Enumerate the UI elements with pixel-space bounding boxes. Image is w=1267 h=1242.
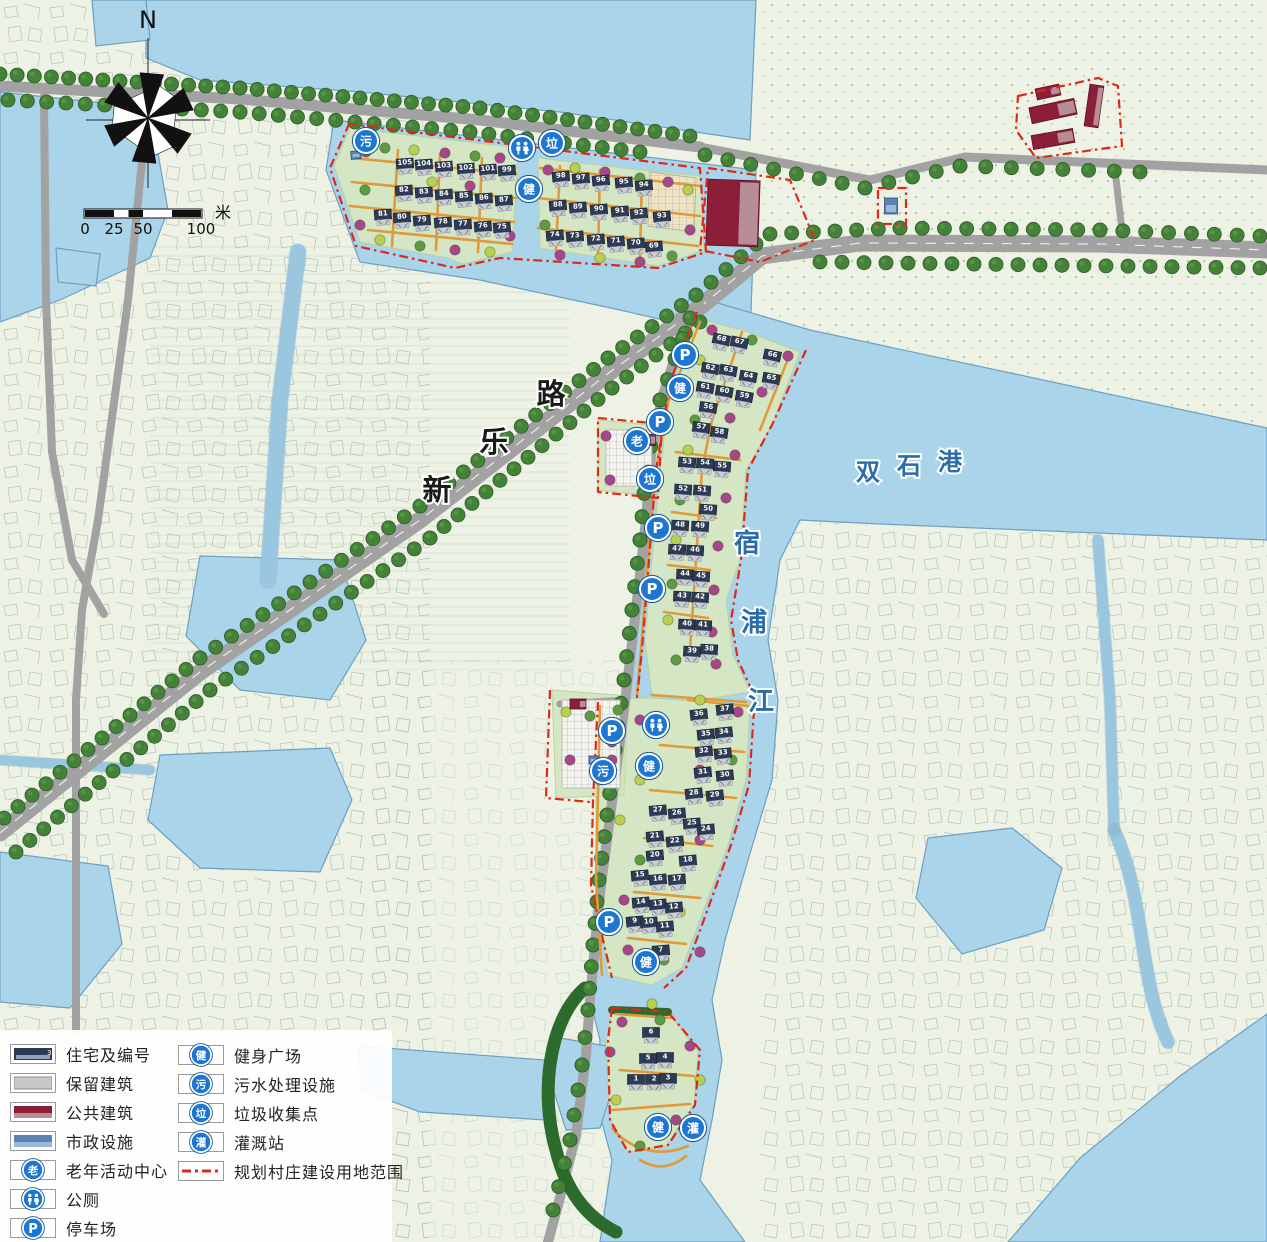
street-tree — [561, 113, 575, 127]
street-tree — [11, 800, 25, 814]
street-tree — [630, 556, 644, 570]
street-tree — [603, 786, 617, 800]
street-tree — [387, 94, 401, 108]
svg-text:P: P — [680, 346, 691, 364]
svg-text:灌: 灌 — [196, 1136, 207, 1149]
building-number: 98 — [556, 171, 567, 180]
street-tree — [233, 105, 247, 119]
garden-tree — [595, 253, 605, 263]
garden-tree — [619, 895, 629, 905]
street-tree — [1055, 258, 1069, 272]
street-tree — [310, 112, 324, 126]
street-tree — [1253, 261, 1267, 275]
garden-tree — [450, 245, 460, 255]
svg-text:双: 双 — [856, 458, 880, 486]
svg-text:港: 港 — [938, 448, 963, 476]
residential-building: 84 — [435, 189, 453, 206]
street-tree — [596, 117, 610, 131]
street-tree — [937, 221, 951, 235]
residential-building: 101 — [479, 164, 497, 181]
street-tree — [303, 575, 317, 589]
svg-text:P: P — [647, 580, 658, 598]
street-tree — [209, 640, 223, 654]
garden-tree — [565, 755, 575, 765]
street-tree — [234, 661, 248, 675]
street-tree — [1165, 260, 1179, 274]
street-tree — [625, 603, 639, 617]
legend-item-label: 污水处理设施 — [234, 1072, 336, 1096]
building-number: 97 — [576, 173, 587, 182]
residential-building: 53 — [678, 457, 696, 474]
building-number: 63 — [723, 365, 734, 375]
street-tree — [828, 224, 842, 238]
sewage-marker: 污 — [589, 757, 616, 784]
north-label: N — [139, 6, 157, 34]
street-tree — [616, 341, 630, 355]
street-tree — [151, 685, 165, 699]
building-number: 64 — [743, 371, 754, 381]
garden-tree — [555, 250, 565, 260]
street-tree — [1004, 161, 1018, 175]
street-tree — [719, 263, 733, 277]
street-tree — [929, 165, 943, 179]
building-number: 3 — [666, 1074, 671, 1082]
elderly-icon: 老 — [10, 1160, 56, 1180]
residential-building: 48 — [671, 520, 689, 536]
street-tree — [734, 250, 748, 264]
garden-tree — [427, 177, 437, 187]
building-number: 34 — [718, 727, 729, 736]
building-number: 101 — [480, 164, 495, 173]
street-tree — [313, 607, 327, 621]
street-tree — [767, 162, 781, 176]
street-tree — [813, 255, 827, 269]
street-tree — [575, 1058, 589, 1072]
street-tree — [1030, 162, 1044, 176]
street-tree — [631, 122, 645, 136]
legend-item-marker-irrigation: 灌灌溉站 — [178, 1127, 404, 1156]
street-tree — [348, 115, 362, 129]
garden-tree — [465, 181, 475, 191]
building-number: 62 — [705, 363, 716, 373]
street-tree — [27, 69, 41, 83]
svg-text:路: 路 — [536, 377, 566, 411]
garden-tree — [543, 165, 553, 175]
street-tree — [597, 830, 611, 844]
svg-text:灌: 灌 — [686, 1121, 699, 1136]
street-tree — [578, 1031, 592, 1045]
street-tree — [507, 462, 521, 476]
street-tree — [634, 359, 648, 373]
legend-item-marker-fitness: 健健身广场 — [178, 1040, 404, 1069]
street-tree — [1162, 226, 1176, 240]
street-tree — [25, 788, 39, 802]
building-number: 61 — [700, 382, 711, 392]
street-tree — [137, 697, 151, 711]
garbage-marker: 垃 — [538, 129, 565, 156]
building-number: 55 — [717, 461, 727, 470]
residential-building: 102 — [457, 163, 475, 180]
building-number: 28 — [688, 788, 699, 797]
street-tree — [1121, 259, 1135, 273]
building-number: 91 — [615, 206, 626, 215]
building-number: 85 — [459, 191, 469, 200]
street-tree — [437, 519, 451, 533]
building-number: 7 — [658, 945, 664, 953]
street-tree — [252, 107, 266, 121]
street-tree — [203, 683, 217, 697]
garden-tree — [667, 251, 677, 261]
street-tree — [744, 157, 758, 171]
building-number: 72 — [591, 234, 602, 243]
street-tree — [297, 618, 311, 632]
residential-building: 47 — [668, 544, 686, 560]
street-tree — [906, 170, 920, 184]
street-tree — [660, 309, 674, 323]
legend-item-label: 保留建筑 — [66, 1071, 134, 1095]
legend-item-label: 健身广场 — [234, 1043, 302, 1067]
street-tree — [587, 362, 601, 376]
street-tree — [698, 148, 712, 162]
building-number: 44 — [680, 569, 690, 578]
street-tree — [366, 532, 380, 546]
residential-building: 80 — [393, 212, 411, 229]
garden-tree — [570, 163, 580, 173]
legend-item-label: 市政设施 — [66, 1129, 134, 1153]
street-tree — [583, 981, 597, 995]
street-tree — [674, 299, 688, 313]
garden-tree — [601, 431, 611, 441]
garden-tree — [655, 1015, 665, 1025]
svg-text:健: 健 — [652, 1120, 665, 1135]
building-number: 80 — [397, 212, 407, 221]
building-number: 56 — [703, 402, 714, 411]
building-number: 32 — [698, 746, 709, 755]
street-tree — [302, 87, 316, 101]
residential-building: 46 — [686, 545, 704, 561]
fitness-marker: 健 — [515, 175, 542, 202]
building-number: 11 — [660, 921, 671, 930]
legend-item-swatch-municipal: 市政设施 — [10, 1127, 168, 1156]
street-tree — [336, 90, 350, 104]
street-tree — [250, 650, 264, 664]
building-number: 73 — [570, 231, 581, 240]
street-tree — [189, 695, 203, 709]
legend-item-label: 规划村庄建设用地范围 — [234, 1159, 404, 1183]
svg-text:垃: 垃 — [196, 1107, 207, 1120]
street-tree — [1139, 225, 1153, 239]
street-tree — [591, 393, 605, 407]
street-tree — [350, 542, 364, 556]
building-number: 77 — [458, 219, 468, 228]
street-tree — [622, 626, 636, 640]
residential-building: 78 — [434, 217, 452, 234]
street-tree — [10, 68, 24, 82]
public-building-plaza — [570, 699, 586, 709]
garden-tree — [647, 999, 657, 1009]
street-tree — [40, 95, 54, 109]
garden-tree — [360, 185, 370, 195]
street-tree — [360, 574, 374, 588]
svg-text:污: 污 — [360, 134, 372, 149]
building-number: 103 — [436, 161, 451, 170]
legend-column-1: 3住宅及编号保留建筑 公共建筑 市政设施老老年活动中心 公厕P停车场 — [10, 1040, 168, 1242]
swatch-municipal — [10, 1131, 56, 1151]
street-tree — [319, 564, 333, 578]
legend-item-swatch-public: 公共建筑 — [10, 1098, 168, 1127]
street-tree — [1184, 226, 1198, 240]
building-number: 50 — [703, 504, 713, 513]
building-number: 38 — [704, 644, 714, 653]
swatch-public — [10, 1102, 56, 1122]
garden-tree — [409, 145, 419, 155]
street-tree — [148, 729, 162, 743]
garden-tree — [725, 413, 735, 423]
street-tree — [39, 777, 53, 791]
street-tree — [199, 79, 213, 93]
street-tree — [1107, 164, 1121, 178]
street-tree — [989, 257, 1003, 271]
residential-building: 79 — [413, 215, 431, 232]
residential-building: 50 — [699, 504, 717, 521]
building-number: 16 — [653, 874, 664, 883]
residential-building: 42 — [691, 592, 709, 608]
building-number: 86 — [479, 193, 489, 202]
building-number: 74 — [550, 230, 561, 239]
street-tree — [1049, 223, 1063, 237]
street-tree — [79, 72, 93, 86]
building-number: 39 — [687, 646, 697, 655]
street-tree — [44, 70, 58, 84]
street-tree — [256, 608, 270, 622]
street-tree — [620, 370, 634, 384]
street-tree — [233, 81, 247, 95]
residential-building: 105 — [396, 158, 414, 175]
street-tree — [581, 1003, 595, 1017]
building-number: 47 — [672, 544, 682, 553]
sewage-icon: 污 — [178, 1074, 224, 1094]
building-number: 79 — [417, 215, 427, 224]
street-tree — [319, 88, 333, 102]
street-tree — [329, 113, 343, 127]
street-tree — [439, 98, 453, 112]
svg-text:P: P — [604, 913, 615, 931]
residential-building: 51 — [693, 485, 711, 502]
street-tree — [858, 181, 872, 195]
garden-tree — [663, 177, 673, 187]
street-tree — [37, 822, 51, 836]
street-tree — [617, 673, 631, 687]
street-tree — [493, 473, 507, 487]
street-tree — [1093, 223, 1107, 237]
svg-text:江: 江 — [748, 687, 774, 717]
building-number: 27 — [653, 805, 664, 814]
residential-building: 81 — [374, 209, 392, 226]
street-tree — [600, 808, 614, 822]
building-number: 70 — [631, 238, 642, 247]
street-tree — [1033, 258, 1047, 272]
fitness-icon: 健 — [178, 1045, 224, 1065]
street-tree — [549, 427, 563, 441]
building-number: 12 — [669, 902, 680, 911]
garden-tree — [585, 711, 595, 721]
street-tree — [1071, 223, 1085, 237]
legend-item-label: 公共建筑 — [66, 1100, 134, 1124]
garden-tree — [617, 1017, 627, 1027]
garden-tree — [695, 695, 705, 705]
street-tree — [214, 104, 228, 118]
street-tree — [721, 153, 735, 167]
scale-tick: 0 — [80, 220, 90, 238]
street-tree — [552, 1180, 566, 1194]
street-tree — [78, 97, 92, 111]
building-number: 35 — [700, 729, 711, 738]
building-number: 105 — [397, 158, 412, 167]
swatch-retained — [10, 1073, 56, 1093]
street-tree — [1143, 260, 1157, 274]
building-number: 95 — [619, 177, 630, 186]
building-number: 78 — [438, 217, 448, 226]
residential-building: 4 — [657, 1053, 674, 1069]
garden-tree — [470, 151, 480, 161]
street-tree — [329, 596, 343, 610]
street-tree — [134, 741, 148, 755]
street-tree — [284, 85, 298, 99]
garden-tree — [540, 220, 550, 230]
garden-tree — [605, 1047, 615, 1057]
building-number: 53 — [682, 457, 692, 466]
street-tree — [563, 416, 577, 430]
street-tree — [20, 94, 34, 108]
building-number: 76 — [478, 221, 488, 230]
street-tree — [953, 159, 967, 173]
street-tree — [704, 275, 718, 289]
street-tree — [850, 223, 864, 237]
building-number: 43 — [677, 591, 687, 600]
garden-tree — [635, 855, 645, 865]
building-number: 15 — [635, 870, 646, 879]
street-tree — [835, 255, 849, 269]
building-number: 51 — [697, 485, 707, 494]
street-tree — [175, 706, 189, 720]
street-tree — [51, 810, 65, 824]
street-tree — [521, 450, 535, 464]
building-number: 60 — [719, 386, 730, 396]
street-tree — [224, 629, 238, 643]
building-number: 87 — [499, 195, 509, 204]
street-tree — [78, 787, 92, 801]
street-tree — [392, 553, 406, 567]
residential-building: 43 — [673, 591, 691, 607]
residential-building: 49 — [691, 521, 709, 537]
parking-marker: P — [671, 341, 698, 368]
garden-tree — [733, 707, 743, 717]
street-tree — [1004, 222, 1018, 236]
village-plan-page: { "colors":{ "land":"#edf2e4","water":"#… — [0, 0, 1267, 1242]
garbage-icon: 垃 — [178, 1103, 224, 1123]
street-tree — [508, 106, 522, 120]
building-number: 2 — [652, 1075, 657, 1083]
building-number: 14 — [636, 897, 647, 906]
garden-tree — [415, 241, 425, 251]
street-tree — [109, 720, 123, 734]
toilet-icon — [10, 1189, 56, 1209]
street-tree — [62, 71, 76, 85]
street-tree — [370, 92, 384, 106]
street-tree — [557, 1156, 571, 1170]
boundary-line-sample — [178, 1161, 224, 1181]
street-tree — [982, 222, 996, 236]
fitness-marker: 健 — [635, 752, 662, 779]
legend-item-label: 灌溉站 — [234, 1130, 285, 1154]
street-tree — [473, 101, 487, 115]
toilet-marker — [508, 134, 535, 161]
garden-tree — [671, 655, 681, 665]
street-tree — [1077, 259, 1091, 273]
irrigation-marker: 灌 — [679, 1114, 706, 1141]
svg-text:新: 新 — [422, 473, 451, 507]
garden-tree — [683, 445, 693, 455]
street-tree — [123, 708, 137, 722]
scale-tick: 25 — [104, 220, 123, 238]
parking-marker: P — [638, 575, 665, 602]
street-tree — [465, 496, 479, 510]
svg-text:健: 健 — [523, 182, 536, 197]
street-tree — [96, 73, 110, 87]
street-tree — [812, 172, 826, 186]
street-tree — [645, 320, 659, 334]
street-tree — [514, 419, 528, 433]
street-tree — [1231, 261, 1245, 275]
street-tree — [979, 160, 993, 174]
svg-text:老: 老 — [631, 434, 643, 449]
building-number: 48 — [675, 520, 685, 529]
svg-text:宿: 宿 — [734, 528, 760, 559]
water-body — [56, 248, 100, 286]
svg-text:乐: 乐 — [479, 425, 508, 459]
street-tree — [546, 1203, 560, 1217]
svg-text:老: 老 — [27, 1164, 39, 1177]
svg-text:3: 3 — [47, 1049, 51, 1057]
street-tree — [376, 564, 390, 578]
legend-item-label: 垃圾收集点 — [234, 1101, 319, 1125]
svg-text:健: 健 — [674, 381, 687, 396]
street-tree — [649, 348, 663, 362]
street-tree — [397, 510, 411, 524]
svg-text:浦: 浦 — [741, 607, 767, 638]
street-tree — [23, 833, 37, 847]
street-tree — [344, 585, 358, 599]
building-number: 24 — [701, 824, 712, 833]
street-tree — [785, 226, 799, 240]
building-number: 17 — [672, 874, 683, 883]
residential-building: 41 — [694, 620, 712, 636]
garden-tree — [380, 143, 390, 153]
parking-marker: P — [644, 514, 671, 541]
street-tree — [382, 521, 396, 535]
svg-text:P: P — [655, 413, 666, 431]
street-tree — [67, 754, 81, 768]
building-number: 84 — [439, 189, 449, 198]
garden-tree — [730, 450, 740, 460]
building-number: 69 — [649, 241, 660, 250]
building-number: 81 — [378, 209, 388, 218]
building-number: 1 — [634, 1075, 639, 1083]
svg-text:P: P — [653, 519, 664, 537]
street-tree — [578, 115, 592, 129]
garden-tree — [440, 148, 450, 158]
street-tree — [835, 176, 849, 190]
